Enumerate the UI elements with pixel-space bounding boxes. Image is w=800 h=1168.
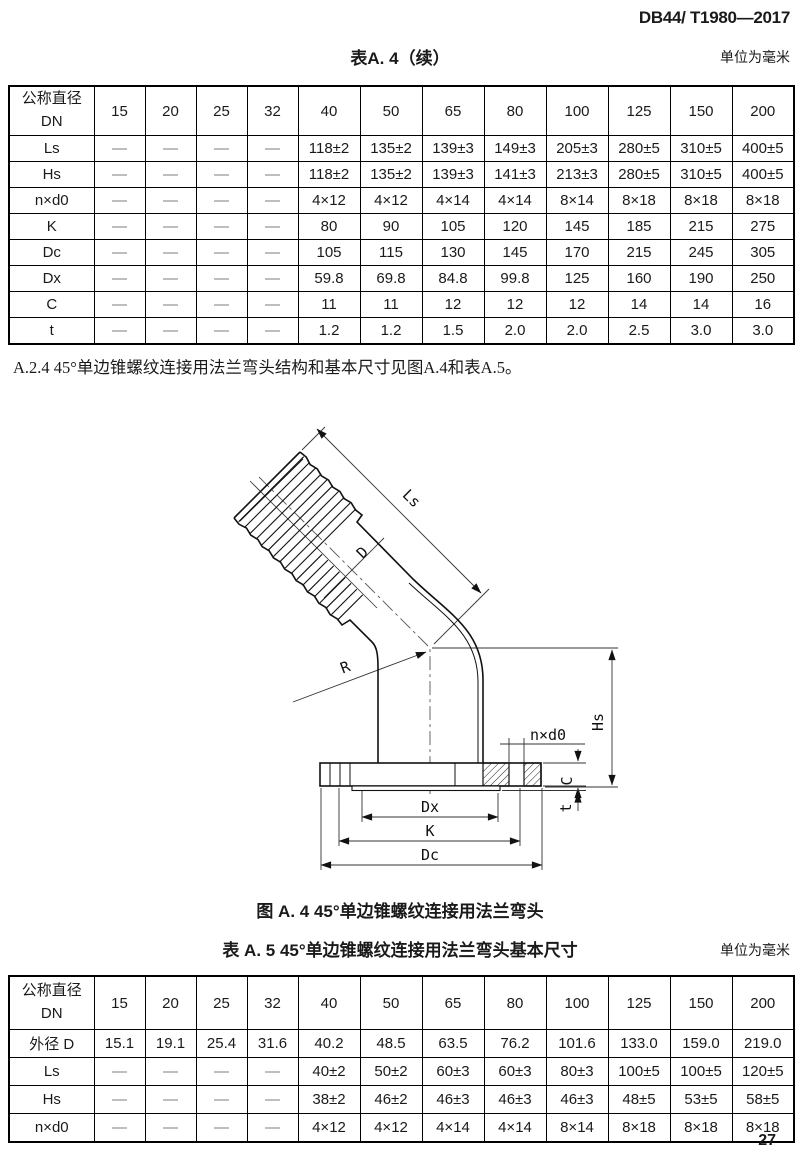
table-cell: —	[145, 266, 196, 292]
table-a4-title: 表A. 4（续）	[0, 44, 800, 69]
table-cell: 2.5	[608, 318, 670, 345]
table-cell: —	[247, 240, 298, 266]
figure-elbow-drawing: Ls D R Hs n×d0 C t Dx K Dc	[0, 420, 800, 890]
table-cell: 120	[484, 214, 546, 240]
table-cell: 101.6	[546, 1030, 608, 1058]
dn-column-header: 25	[196, 976, 247, 1030]
table-cell: 1.5	[422, 318, 484, 345]
table-cell: 2.0	[546, 318, 608, 345]
table-cell: —	[247, 162, 298, 188]
table-cell: —	[145, 214, 196, 240]
dim-label-ls: Ls	[399, 486, 425, 512]
table-cell: —	[145, 1058, 196, 1086]
table-cell: 50±2	[360, 1058, 422, 1086]
table-cell: 8×18	[608, 188, 670, 214]
corner-label-cn: 公称直径	[10, 89, 94, 111]
table-cell: 135±2	[360, 162, 422, 188]
table-row: Dx————59.869.884.899.8125160190250	[9, 266, 794, 292]
table-cell: 48.5	[360, 1030, 422, 1058]
row-label: 外径 D	[9, 1030, 94, 1058]
table-row: C————1111121212141416	[9, 292, 794, 318]
table-cell: 12	[546, 292, 608, 318]
table-cell: 60±3	[422, 1058, 484, 1086]
table-cell: —	[196, 136, 247, 162]
table-a4-header-row: 公称直径 DN 1520253240506580100125150200	[9, 86, 794, 136]
table-cell: —	[247, 292, 298, 318]
table-cell: 305	[732, 240, 794, 266]
table-cell: —	[94, 266, 145, 292]
table-cell: —	[196, 162, 247, 188]
table-cell: —	[247, 1114, 298, 1143]
table-cell: 130	[422, 240, 484, 266]
row-label: Hs	[9, 1086, 94, 1114]
table-row: Dc————105115130145170215245305	[9, 240, 794, 266]
table-cell: 185	[608, 214, 670, 240]
dn-column-header: 150	[670, 86, 732, 136]
table-cell: —	[145, 188, 196, 214]
table-cell: 120±5	[732, 1058, 794, 1086]
table-cell: —	[247, 188, 298, 214]
table-cell: —	[196, 266, 247, 292]
table-a5-header-row: 公称直径 DN 1520253240506580100125150200	[9, 976, 794, 1030]
table-cell: 60±3	[484, 1058, 546, 1086]
table-cell: 125	[546, 266, 608, 292]
row-label: Dx	[9, 266, 94, 292]
table-cell: 19.1	[145, 1030, 196, 1058]
table-cell: —	[196, 1114, 247, 1143]
table-a5: 公称直径 DN 1520253240506580100125150200 外径 …	[8, 975, 795, 1143]
table-cell: 118±2	[298, 162, 360, 188]
table-cell: 170	[546, 240, 608, 266]
table-cell: 12	[422, 292, 484, 318]
table-cell: 58±5	[732, 1086, 794, 1114]
table-cell: 84.8	[422, 266, 484, 292]
dn-column-header: 65	[422, 976, 484, 1030]
table-cell: —	[94, 1114, 145, 1143]
table-row: Ls————40±250±260±360±380±3100±5100±5120±…	[9, 1058, 794, 1086]
table-cell: —	[247, 136, 298, 162]
table-cell: 12	[484, 292, 546, 318]
dn-column-header: 80	[484, 86, 546, 136]
table-cell: 245	[670, 240, 732, 266]
table-cell: 14	[670, 292, 732, 318]
row-label: C	[9, 292, 94, 318]
table-cell: 46±2	[360, 1086, 422, 1114]
table-cell: —	[247, 1058, 298, 1086]
dn-column-header: 125	[608, 976, 670, 1030]
table-cell: —	[196, 292, 247, 318]
table-cell: 4×12	[298, 188, 360, 214]
row-label: n×d0	[9, 1114, 94, 1143]
dn-column-header: 50	[360, 976, 422, 1030]
table-cell: 4×14	[484, 188, 546, 214]
dn-column-header: 40	[298, 976, 360, 1030]
table-cell: 8×18	[732, 188, 794, 214]
flange-section-hatched	[483, 763, 509, 786]
table-cell: —	[247, 1086, 298, 1114]
row-label: K	[9, 214, 94, 240]
dn-column-header: 200	[732, 86, 794, 136]
table-cell: —	[145, 1086, 196, 1114]
table-cell: —	[94, 214, 145, 240]
corner-label-cn: 公称直径	[10, 981, 94, 1003]
table-cell: 4×12	[298, 1114, 360, 1143]
dn-column-header: 15	[94, 976, 145, 1030]
table-cell: 4×14	[484, 1114, 546, 1143]
table-cell: 310±5	[670, 136, 732, 162]
dn-column-header: 25	[196, 86, 247, 136]
table-cell: 141±3	[484, 162, 546, 188]
table-cell: 53±5	[670, 1086, 732, 1114]
table-cell: —	[94, 240, 145, 266]
dim-label-dx: Dx	[421, 798, 439, 816]
table-cell: —	[94, 188, 145, 214]
table-cell: 219.0	[732, 1030, 794, 1058]
dn-column-header: 65	[422, 86, 484, 136]
table-row: Hs————118±2135±2139±3141±3213±3280±5310±…	[9, 162, 794, 188]
table-cell: 46±3	[546, 1086, 608, 1114]
dn-column-header: 32	[247, 86, 298, 136]
dim-label-r: R	[338, 657, 354, 677]
dim-label-c: C	[558, 776, 576, 785]
table-cell: —	[145, 292, 196, 318]
dn-column-header: 32	[247, 976, 298, 1030]
dn-column-header: 200	[732, 976, 794, 1030]
table-a5-title: 表 A. 5 45°单边锥螺纹连接用法兰弯头基本尺寸	[0, 936, 800, 961]
table-cell: 15.1	[94, 1030, 145, 1058]
table-cell: 4×14	[422, 188, 484, 214]
dn-column-header: 100	[546, 86, 608, 136]
centerlines	[259, 477, 430, 794]
table-cell: —	[145, 136, 196, 162]
table-cell: 14	[608, 292, 670, 318]
row-label: n×d0	[9, 188, 94, 214]
dn-column-header: 20	[145, 86, 196, 136]
dn-column-header: 20	[145, 976, 196, 1030]
table-cell: 105	[422, 214, 484, 240]
table-cell: —	[94, 292, 145, 318]
table-cell: 25.4	[196, 1030, 247, 1058]
table-cell: 100±5	[608, 1058, 670, 1086]
table-cell: 8×18	[608, 1114, 670, 1143]
table-cell: 280±5	[608, 136, 670, 162]
table-row: Ls————118±2135±2139±3149±3205±3280±5310±…	[9, 136, 794, 162]
flange	[320, 763, 541, 791]
table-cell: 190	[670, 266, 732, 292]
table-cell: 118±2	[298, 136, 360, 162]
table-cell: 31.6	[247, 1030, 298, 1058]
dim-label-dc: Dc	[421, 846, 439, 864]
table-row: Hs————38±246±246±346±346±348±553±558±5	[9, 1086, 794, 1114]
table-cell: 80±3	[546, 1058, 608, 1086]
table-a4: 公称直径 DN 1520253240506580100125150200 Ls—…	[8, 85, 795, 345]
table-cell: 40.2	[298, 1030, 360, 1058]
table-cell: 213±3	[546, 162, 608, 188]
table-cell: 205±3	[546, 136, 608, 162]
table-cell: 38±2	[298, 1086, 360, 1114]
table-cell: 4×14	[422, 1114, 484, 1143]
table-cell: 8×14	[546, 188, 608, 214]
flange-section-hatched	[524, 763, 541, 786]
table-cell: 133.0	[608, 1030, 670, 1058]
dn-column-header: 15	[94, 86, 145, 136]
table-cell: 145	[546, 214, 608, 240]
dim-label-nxd0: n×d0	[530, 726, 566, 744]
dn-column-header: 40	[298, 86, 360, 136]
table-cell: 3.0	[670, 318, 732, 345]
dn-column-header: 80	[484, 976, 546, 1030]
table-a4-unit-note: 单位为毫米	[720, 47, 790, 67]
table-cell: 11	[298, 292, 360, 318]
table-cell: 69.8	[360, 266, 422, 292]
dn-column-header: 125	[608, 86, 670, 136]
table-cell: 2.0	[484, 318, 546, 345]
table-cell: —	[94, 1058, 145, 1086]
table-a4-corner-header: 公称直径 DN	[9, 86, 94, 136]
table-cell: 159.0	[670, 1030, 732, 1058]
dn-column-header: 50	[360, 86, 422, 136]
table-cell: 215	[608, 240, 670, 266]
table-row: n×d0————4×124×124×144×148×148×188×188×18	[9, 1114, 794, 1143]
table-cell: 135±2	[360, 136, 422, 162]
table-cell: 8×14	[546, 1114, 608, 1143]
table-cell: —	[94, 318, 145, 345]
table-cell: 139±3	[422, 162, 484, 188]
table-cell: 8×18	[670, 188, 732, 214]
table-cell: 1.2	[298, 318, 360, 345]
table-cell: 115	[360, 240, 422, 266]
elbow-body	[234, 452, 483, 763]
table-cell: 4×12	[360, 188, 422, 214]
table-cell: 400±5	[732, 136, 794, 162]
page-number: 27	[758, 1132, 776, 1150]
table-cell: —	[196, 1058, 247, 1086]
table-cell: —	[196, 214, 247, 240]
table-cell: 90	[360, 214, 422, 240]
table-cell: 8×18	[670, 1114, 732, 1143]
table-cell: —	[247, 266, 298, 292]
row-label: Ls	[9, 1058, 94, 1086]
table-cell: 99.8	[484, 266, 546, 292]
table-cell: —	[196, 318, 247, 345]
dn-column-header: 100	[546, 976, 608, 1030]
table-cell: —	[145, 240, 196, 266]
table-cell: 4×12	[360, 1114, 422, 1143]
figure-a4-caption: 图 A. 4 45°单边锥螺纹连接用法兰弯头	[0, 897, 800, 922]
table-a5-unit-note: 单位为毫米	[720, 940, 790, 960]
paragraph-a24: A.2.4 45°单边锥螺纹连接用法兰弯头结构和基本尺寸见图A.4和表A.5。	[13, 356, 783, 379]
table-cell: 275	[732, 214, 794, 240]
row-label: Hs	[9, 162, 94, 188]
table-cell: —	[145, 318, 196, 345]
table-cell: 250	[732, 266, 794, 292]
table-cell: 46±3	[422, 1086, 484, 1114]
table-cell: 48±5	[608, 1086, 670, 1114]
table-row: 外径 D15.119.125.431.640.248.563.576.2101.…	[9, 1030, 794, 1058]
table-cell: —	[145, 1114, 196, 1143]
table-cell: 63.5	[422, 1030, 484, 1058]
table-cell: 105	[298, 240, 360, 266]
table-cell: 16	[732, 292, 794, 318]
table-cell: 145	[484, 240, 546, 266]
thread-lines-half	[297, 554, 363, 620]
table-cell: 215	[670, 214, 732, 240]
table-cell: 11	[360, 292, 422, 318]
corner-label-dn: DN	[10, 111, 94, 133]
table-cell: —	[247, 214, 298, 240]
row-label: t	[9, 318, 94, 345]
table-row: t————1.21.21.52.02.02.53.03.0	[9, 318, 794, 345]
table-cell: 76.2	[484, 1030, 546, 1058]
table-cell: 80	[298, 214, 360, 240]
table-cell: —	[94, 1086, 145, 1114]
table-cell: 46±3	[484, 1086, 546, 1114]
table-row: K————8090105120145185215275	[9, 214, 794, 240]
dn-column-header: 150	[670, 976, 732, 1030]
table-cell: 40±2	[298, 1058, 360, 1086]
table-cell: 280±5	[608, 162, 670, 188]
table-row: n×d0————4×124×124×144×148×148×188×188×18	[9, 188, 794, 214]
table-cell: 100±5	[670, 1058, 732, 1086]
table-cell: —	[145, 162, 196, 188]
table-cell: 160	[608, 266, 670, 292]
dim-label-k: K	[425, 822, 434, 840]
table-cell: —	[94, 162, 145, 188]
table-cell: 400±5	[732, 162, 794, 188]
table-cell: 310±5	[670, 162, 732, 188]
dim-label-hs: Hs	[589, 713, 607, 731]
table-a5-corner-header: 公称直径 DN	[9, 976, 94, 1030]
corner-label-dn: DN	[10, 1003, 94, 1025]
row-label: Dc	[9, 240, 94, 266]
table-cell: 59.8	[298, 266, 360, 292]
table-cell: —	[196, 188, 247, 214]
table-cell: 149±3	[484, 136, 546, 162]
row-label: Ls	[9, 136, 94, 162]
table-cell: 139±3	[422, 136, 484, 162]
table-cell: —	[196, 1086, 247, 1114]
liner-face-plate	[352, 786, 500, 791]
dim-label-t: t	[557, 803, 575, 812]
table-cell: 1.2	[360, 318, 422, 345]
document-page: DB44/ T1980—2017 表A. 4（续） 单位为毫米 公称直径 DN …	[0, 0, 800, 1168]
table-cell: —	[196, 240, 247, 266]
table-cell: —	[247, 318, 298, 345]
table-cell: 3.0	[732, 318, 794, 345]
doc-number: DB44/ T1980—2017	[639, 8, 790, 28]
table-cell: —	[94, 136, 145, 162]
